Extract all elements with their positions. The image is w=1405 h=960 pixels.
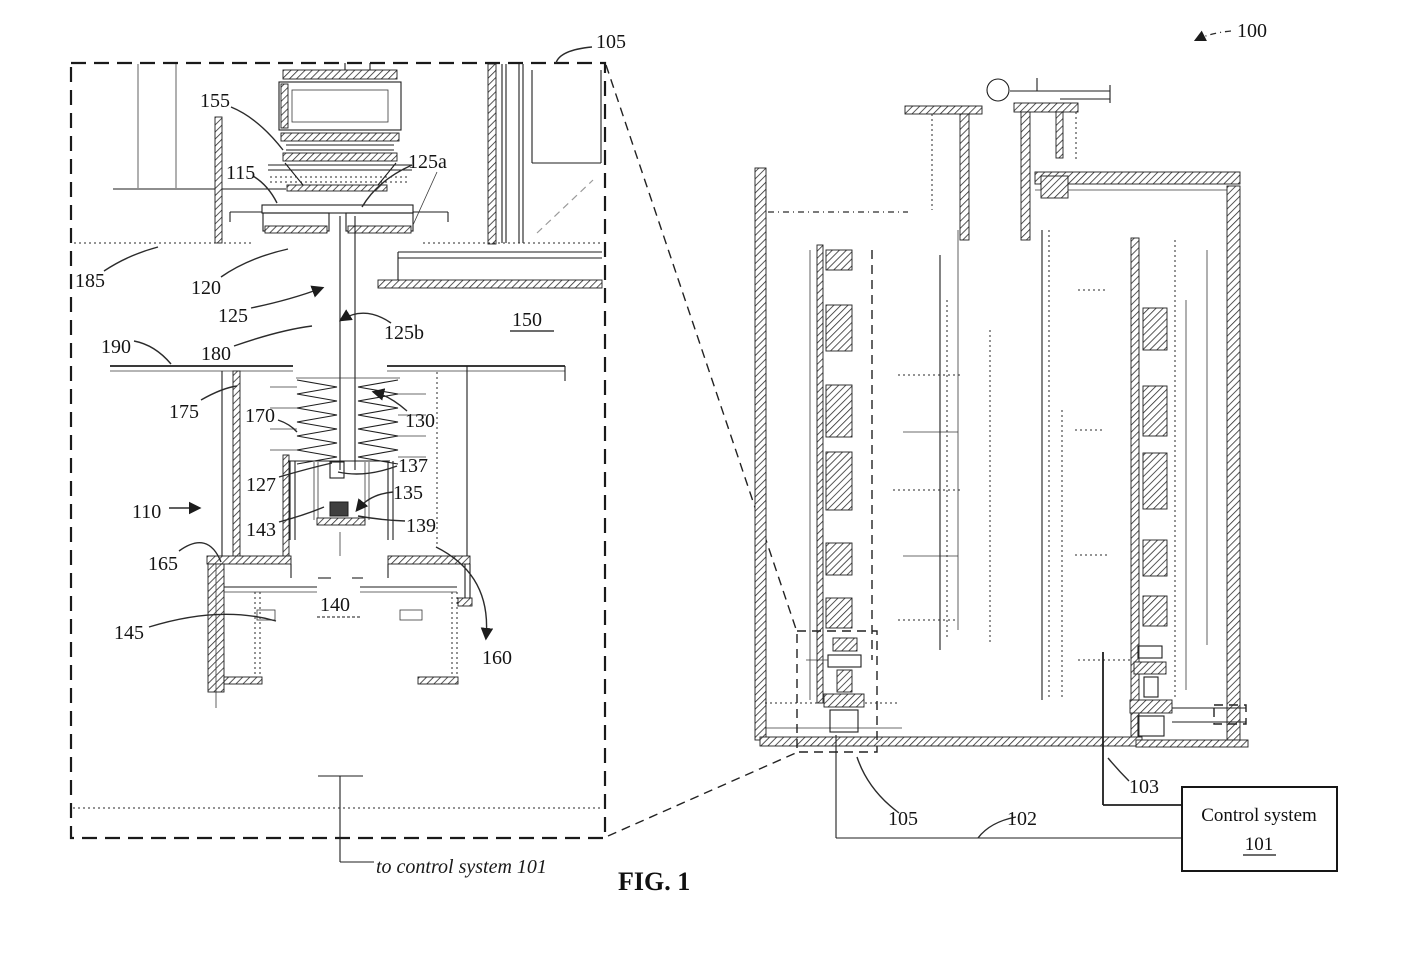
left-bottom-valve	[806, 638, 864, 732]
ref-139: 139	[406, 515, 436, 537]
ref-125a: 125a	[408, 151, 447, 173]
detail-view-border	[71, 63, 605, 838]
control-system-title: Control system	[1201, 805, 1317, 826]
ref-185: 185	[75, 270, 105, 292]
ref-165: 165	[148, 553, 178, 575]
ref-135: 135	[393, 482, 423, 504]
ref-115: 115	[226, 162, 255, 184]
machine-drawing	[755, 78, 1248, 838]
ref-102: 102	[1007, 808, 1037, 830]
ref-125b: 125b	[384, 322, 424, 344]
to-control-system-note: to control system 101	[376, 856, 547, 878]
ref-160: 160	[482, 647, 512, 669]
ref-100: 100	[1237, 20, 1267, 42]
figure-caption: FIG. 1	[618, 867, 690, 896]
figure-1-drawing: Control system 101 105 155	[0, 0, 1405, 960]
ref-143: 143	[246, 519, 276, 541]
reference-labels: 105 155 115 125a 185 120 125 125b 150 19…	[75, 20, 1267, 830]
ref-155: 155	[200, 90, 230, 112]
ref-140: 140	[320, 594, 350, 616]
ref-120: 120	[191, 277, 221, 299]
ref-130: 130	[405, 410, 435, 432]
ref-105-top: 105	[596, 31, 626, 53]
ref-190: 190	[101, 336, 131, 358]
ref-110: 110	[132, 501, 161, 523]
ref-127: 127	[246, 474, 276, 496]
ref-137: 137	[398, 455, 428, 477]
ref-150: 150	[512, 309, 542, 331]
control-system-box: Control system 101	[1182, 787, 1337, 871]
ref-125: 125	[218, 305, 248, 327]
ref-180: 180	[201, 343, 231, 365]
patent-figure-page: Control system 101 105 155	[0, 0, 1405, 960]
ref-145: 145	[114, 622, 144, 644]
control-system-ref: 101	[1245, 834, 1274, 855]
detail-drawing	[73, 63, 603, 862]
ref-175: 175	[169, 401, 199, 423]
ref-105-machine: 105	[888, 808, 918, 830]
ref-103: 103	[1129, 776, 1159, 798]
ref-170: 170	[245, 405, 275, 427]
